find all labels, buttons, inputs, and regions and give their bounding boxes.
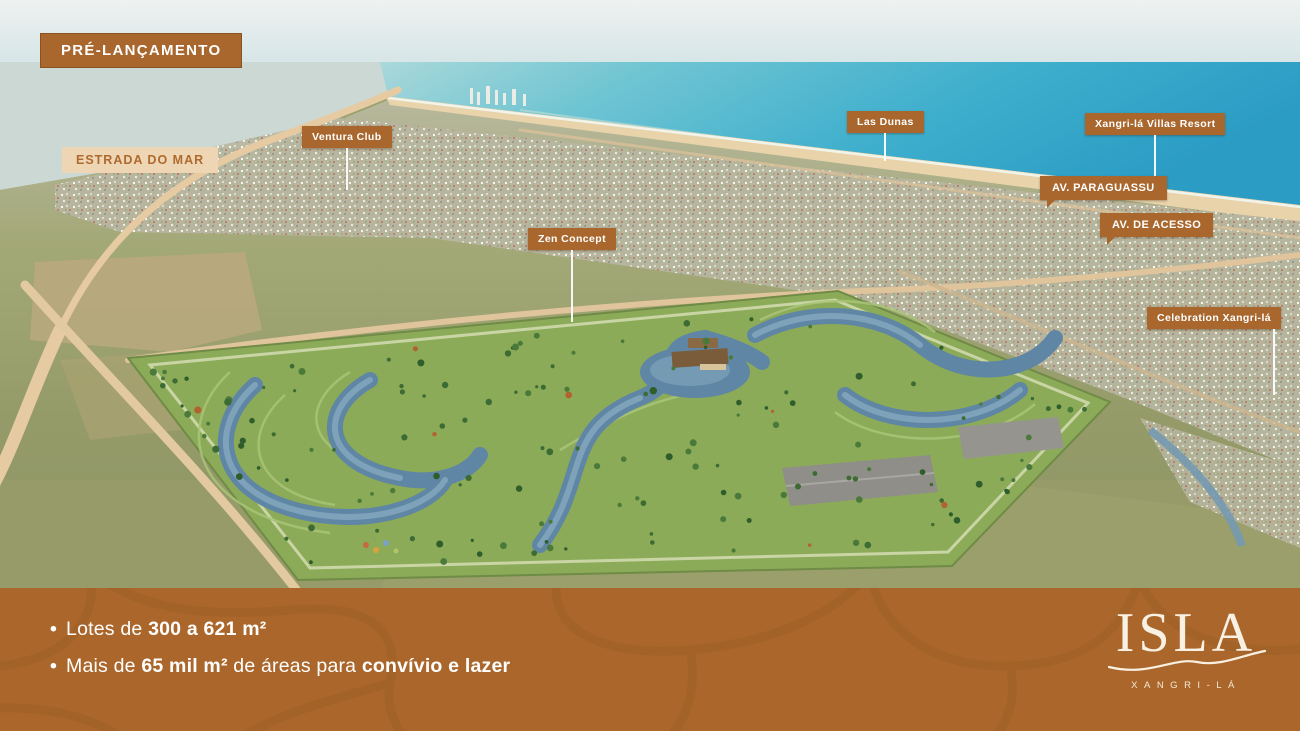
leader-line bbox=[884, 133, 886, 161]
bullet-leisure-areas: • Mais de 65 mil m² de áreas para convív… bbox=[50, 655, 510, 678]
leader-line bbox=[571, 250, 573, 322]
map-label-text: AV. DE ACESSO bbox=[1100, 213, 1213, 237]
map-label-text: Zen Concept bbox=[528, 228, 616, 250]
leader-line bbox=[1273, 329, 1275, 395]
pre-launch-label: PRÉ-LANÇAMENTO bbox=[61, 42, 221, 59]
bullet-lot-sizes: • Lotes de 300 a 621 m² bbox=[50, 618, 510, 641]
map-label-text: Xangri-lá Villas Resort bbox=[1085, 113, 1225, 135]
marketing-slide: PRÉ-LANÇAMENTO ESTRADA DO MAR Ventura Cl… bbox=[0, 0, 1300, 731]
map-label-text: Celebration Xangri-lá bbox=[1147, 307, 1281, 329]
aerial-photo bbox=[0, 0, 1300, 588]
map-label-celebration-xangrila: Celebration Xangri-lá bbox=[1147, 307, 1281, 395]
map-label-av-paraguassu: AV. PARAGUASSU bbox=[1040, 176, 1167, 200]
map-label-las-dunas: Las Dunas bbox=[847, 111, 924, 161]
map-label-ventura-club: Ventura Club bbox=[302, 126, 392, 190]
map-label-av-de-acesso: AV. DE ACESSO bbox=[1100, 213, 1213, 237]
bullet-dot: • bbox=[50, 618, 57, 641]
dirt-field bbox=[30, 252, 262, 352]
map-label-estrada-do-mar: ESTRADA DO MAR bbox=[62, 147, 218, 173]
pre-launch-badge: PRÉ-LANÇAMENTO bbox=[40, 33, 242, 68]
logo-subtitle: XANGRI-LÁ bbox=[1088, 680, 1284, 691]
map-label-text: ESTRADA DO MAR bbox=[62, 147, 218, 173]
feature-bullets: • Lotes de 300 a 621 m² • Mais de 65 mil… bbox=[50, 618, 510, 692]
isla-logo: ISLA XANGRI-LÁ bbox=[1088, 605, 1284, 691]
map-label-zen-concept: Zen Concept bbox=[528, 228, 616, 322]
map-label-text: Las Dunas bbox=[847, 111, 924, 133]
map-label-text: AV. PARAGUASSU bbox=[1040, 176, 1167, 200]
leader-line bbox=[346, 148, 348, 190]
map-label-text: Ventura Club bbox=[302, 126, 392, 148]
bullet-dot: • bbox=[50, 655, 57, 678]
footer-bar: • Lotes de 300 a 621 m² • Mais de 65 mil… bbox=[0, 588, 1300, 731]
